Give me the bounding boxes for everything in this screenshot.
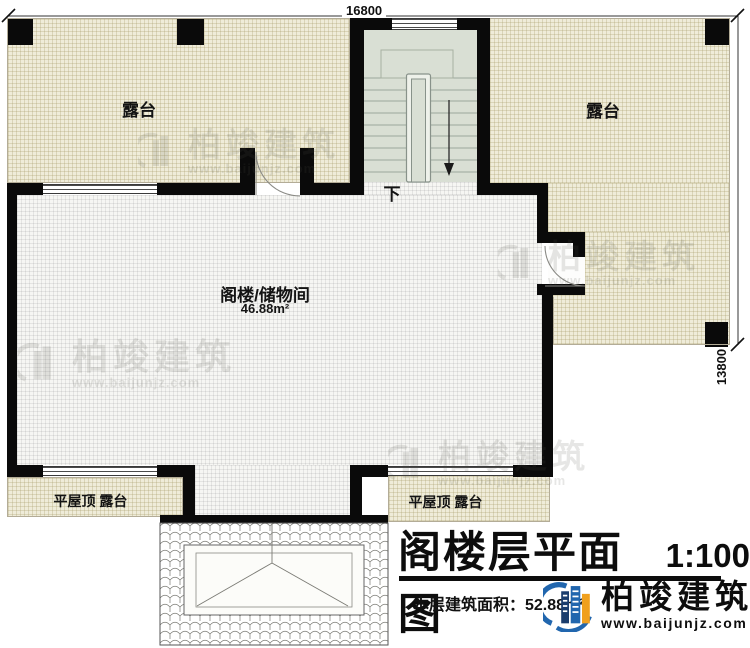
terrace-top-left-label: 露台 [109, 96, 169, 121]
dimension-top-label: 16800 [342, 3, 386, 18]
dimension-right-label: 13800 [714, 338, 729, 396]
floor-plan-canvas: 16800 13800 露台 露台 阁楼/储物间 46.88m² 下 平屋顶 露… [0, 0, 750, 648]
terrace-right-area [585, 232, 730, 295]
door-jamb [573, 243, 585, 257]
wall-segment [537, 232, 585, 243]
wall-segment [478, 183, 548, 195]
logo-name: 柏竣建筑 [601, 580, 750, 613]
company-logo: 柏竣建筑 、 www.baijunjz.com [543, 580, 750, 632]
wall-segment [350, 18, 392, 30]
wall-segment [7, 183, 17, 477]
wall-segment [537, 284, 585, 295]
door-jamb [240, 148, 255, 195]
stairs-down-label: 下 [378, 180, 406, 205]
attic-room-area [195, 465, 350, 515]
wall-segment [457, 18, 490, 30]
window [43, 466, 157, 476]
column [177, 18, 204, 45]
flat-roof-terrace-left-label: 平屋顶 露台 [18, 491, 163, 511]
flat-roof-terrace-right-label: 平屋顶 露台 [373, 492, 518, 512]
logo-building-icon [543, 580, 595, 632]
wall-segment [7, 465, 43, 477]
wall-segment [350, 465, 388, 477]
wall-segment [157, 183, 240, 195]
drawing-scale: 1:100 [666, 537, 750, 575]
wall-segment [542, 295, 553, 473]
wall-segment [350, 18, 364, 183]
wall-segment [513, 465, 553, 477]
column [7, 18, 33, 45]
column [705, 18, 730, 45]
wall-segment [160, 515, 388, 527]
logo-url: www.baijunjz.com [601, 615, 750, 631]
wall-segment [314, 183, 364, 195]
terrace-right-area [548, 183, 730, 232]
window [43, 184, 157, 194]
roof-ridges [197, 523, 348, 606]
roof-group [160, 523, 388, 645]
stairwell-area [364, 30, 477, 182]
wall-segment [537, 195, 548, 232]
terrace-right-area [553, 295, 730, 345]
window [392, 18, 457, 30]
terrace-right-label: 露台 [573, 97, 633, 122]
door-jamb [300, 148, 314, 195]
attic-room-area-value: 46.88m² [185, 301, 345, 316]
window [388, 466, 513, 476]
attic-room-area [17, 195, 542, 465]
logo-texts: 柏竣建筑 、 www.baijunjz.com [601, 580, 750, 631]
wall-segment [477, 18, 490, 195]
